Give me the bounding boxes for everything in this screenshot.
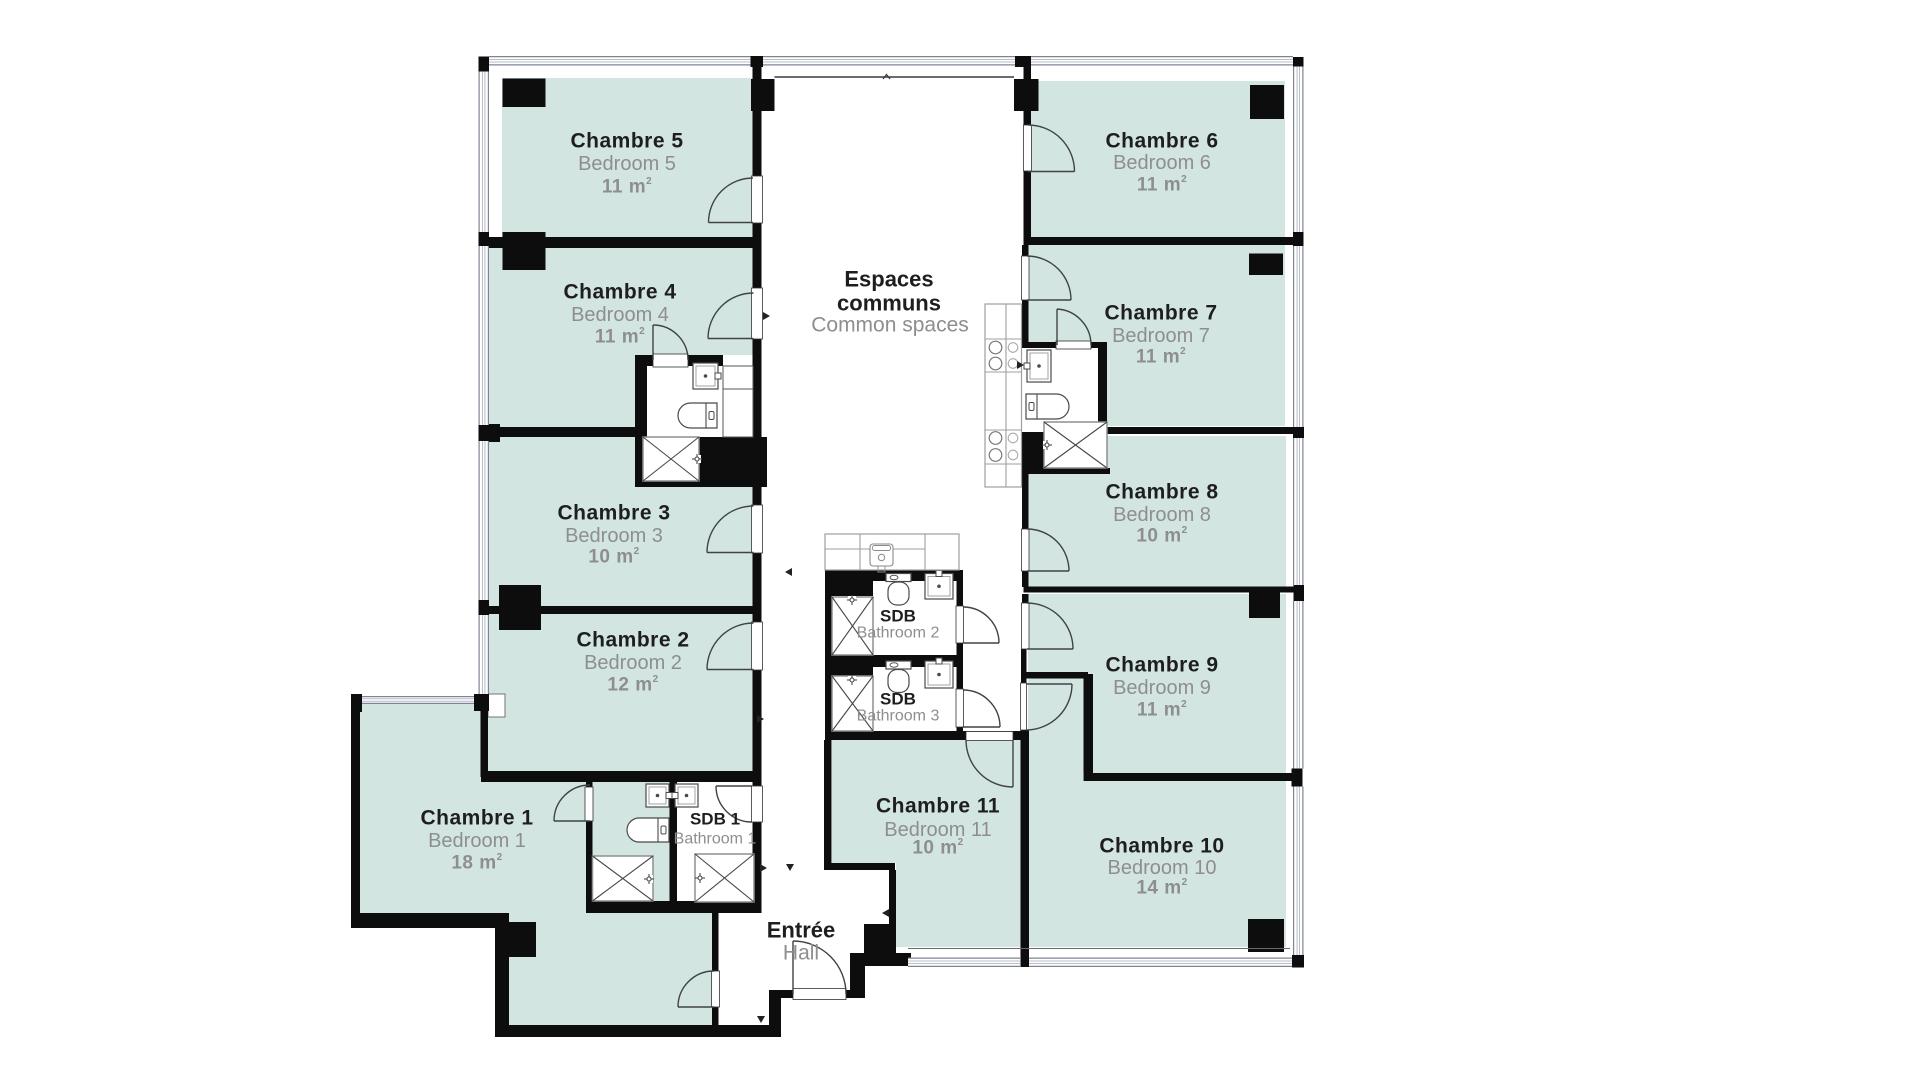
svg-text:12 m2: 12 m2	[607, 674, 658, 696]
svg-text:Bedroom 8: Bedroom 8	[1113, 504, 1211, 526]
svg-text:Bedroom 6: Bedroom 6	[1113, 152, 1211, 174]
svg-text:10 m2: 10 m2	[588, 546, 639, 568]
svg-text:Common spaces: Common spaces	[811, 314, 969, 337]
svg-text:Chambre 1: Chambre 1	[420, 807, 533, 830]
svg-text:Entrée: Entrée	[767, 918, 835, 943]
svg-text:11 m2: 11 m2	[1136, 346, 1186, 368]
svg-text:Chambre 2: Chambre 2	[576, 629, 689, 652]
svg-text:SDB 1: SDB 1	[690, 810, 740, 829]
svg-text:14 m2: 14 m2	[1136, 877, 1187, 899]
svg-text:Bedroom 2: Bedroom 2	[584, 652, 682, 674]
svg-text:Bedroom 1: Bedroom 1	[428, 830, 526, 852]
svg-text:Bathroom 3: Bathroom 3	[857, 708, 940, 725]
svg-text:Hall: Hall	[783, 942, 819, 965]
svg-text:18 m2: 18 m2	[451, 852, 502, 874]
svg-text:Chambre 9: Chambre 9	[1105, 654, 1218, 677]
svg-text:Bedroom 5: Bedroom 5	[578, 153, 676, 175]
svg-text:Chambre 7: Chambre 7	[1104, 302, 1217, 325]
svg-text:Chambre 11: Chambre 11	[876, 795, 1000, 818]
svg-text:Chambre 5: Chambre 5	[570, 130, 683, 153]
svg-text:Bathroom 2: Bathroom 2	[857, 625, 940, 642]
svg-text:11 m2: 11 m2	[1137, 699, 1187, 721]
svg-text:Bathroom 1: Bathroom 1	[674, 831, 757, 848]
svg-text:Chambre 3: Chambre 3	[557, 502, 670, 525]
svg-text:11 m2: 11 m2	[1137, 174, 1187, 196]
svg-text:communs: communs	[837, 291, 941, 316]
svg-text:SDB: SDB	[880, 690, 916, 709]
svg-text:10 m2: 10 m2	[912, 837, 963, 859]
svg-text:Bedroom 4: Bedroom 4	[571, 304, 669, 326]
svg-text:Chambre 6: Chambre 6	[1105, 130, 1218, 153]
svg-text:Bedroom 3: Bedroom 3	[565, 525, 663, 547]
svg-text:Chambre 8: Chambre 8	[1105, 481, 1218, 504]
svg-text:Bedroom 10: Bedroom 10	[1108, 857, 1217, 879]
svg-text:10 m2: 10 m2	[1136, 525, 1187, 547]
svg-text:SDB: SDB	[880, 607, 916, 626]
svg-text:Chambre 10: Chambre 10	[1099, 835, 1224, 858]
svg-text:Bedroom 9: Bedroom 9	[1113, 677, 1211, 699]
svg-text:Bedroom 7: Bedroom 7	[1112, 325, 1210, 347]
svg-text:Espaces: Espaces	[844, 267, 933, 292]
svg-text:Chambre 4: Chambre 4	[563, 281, 676, 304]
svg-text:11 m2: 11 m2	[595, 326, 645, 348]
svg-text:11 m2: 11 m2	[602, 176, 652, 198]
